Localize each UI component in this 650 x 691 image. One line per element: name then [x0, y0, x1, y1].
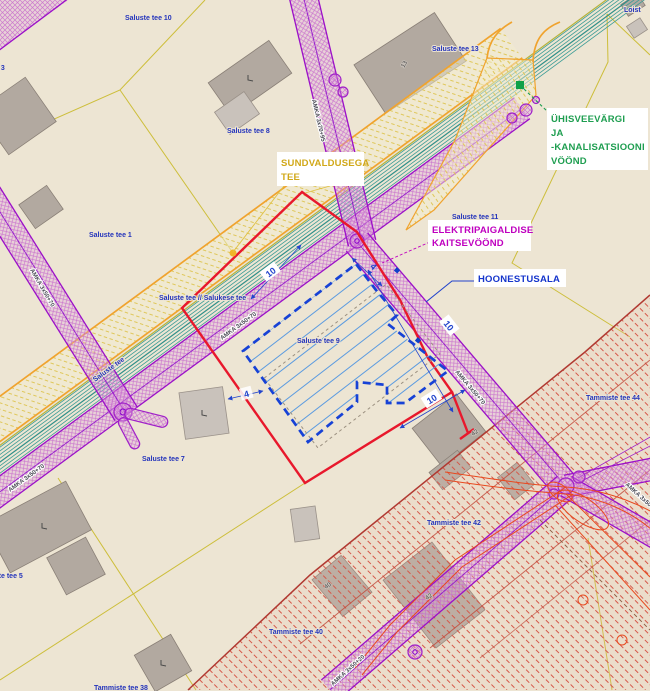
parcel-label: Saluste tee 7 [142, 456, 185, 463]
uhisveevargi-label: ÜHISVEEVÄRGI JA -KANALISATSIOONI VÖÖND [547, 108, 648, 170]
map-canvas: 10 10 10 4 4 AMKA 3x70+95 AMKA 3x50+70 A… [0, 0, 650, 691]
building [290, 506, 319, 542]
parcel-label: Saluste tee 9 [297, 338, 340, 345]
parcel-label: Tammiste tee 38 [94, 685, 148, 691]
hoonestusala-label: HOONESTUSALA [474, 269, 566, 287]
svg-text:JA: JA [551, 128, 564, 139]
svg-text:KAITSEVÖÖND: KAITSEVÖÖND [432, 238, 504, 249]
parcel-label: Saluste tee 11 [452, 214, 498, 221]
svg-text:SUNDVALDUSEGA: SUNDVALDUSEGA [281, 158, 369, 169]
building [179, 387, 229, 440]
svg-text:ELEKTRIPAIGALDISE: ELEKTRIPAIGALDISE [432, 225, 533, 236]
svg-text:-KANALISATSIOONI: -KANALISATSIOONI [551, 142, 645, 153]
svg-text:VÖÖND: VÖÖND [551, 156, 587, 167]
sundvaldusega-tee-label: SUNDVALDUSEGA TEE [277, 152, 369, 186]
parcel-label: Saluste tee 13 [432, 46, 479, 53]
cadastral-plan-map: 10 10 10 4 4 AMKA 3x70+95 AMKA 3x50+70 A… [0, 0, 650, 691]
parcel-label: Saluste tee 5 [0, 573, 23, 580]
parcel-label: Tammiste tee 44 [586, 395, 640, 402]
parcel-label: Saluste tee 10 [125, 15, 172, 22]
parcel-label: Loist [624, 7, 641, 14]
parcel-label: Saluste tee 1 [89, 232, 132, 239]
parcel-label: Saluste tee 8 [227, 128, 270, 135]
svg-text:HOONESTUSALA: HOONESTUSALA [478, 274, 560, 285]
svg-text:ÜHISVEEVÄRGI: ÜHISVEEVÄRGI [551, 114, 625, 125]
svg-text:TEE: TEE [281, 172, 300, 183]
water-point-marker [516, 81, 524, 89]
parcel-label: Saluste tee 3 [0, 65, 5, 72]
parcel-label: Tammiste tee 42 [427, 520, 481, 527]
parcel-point-marker [230, 250, 237, 257]
road-name-label: Saluste tee // Salukese tee [159, 295, 246, 302]
parcel-label: Tammiste tee 40 [269, 629, 323, 636]
elektripaigaldise-label: ELEKTRIPAIGALDISE KAITSEVÖÖND [428, 220, 533, 251]
